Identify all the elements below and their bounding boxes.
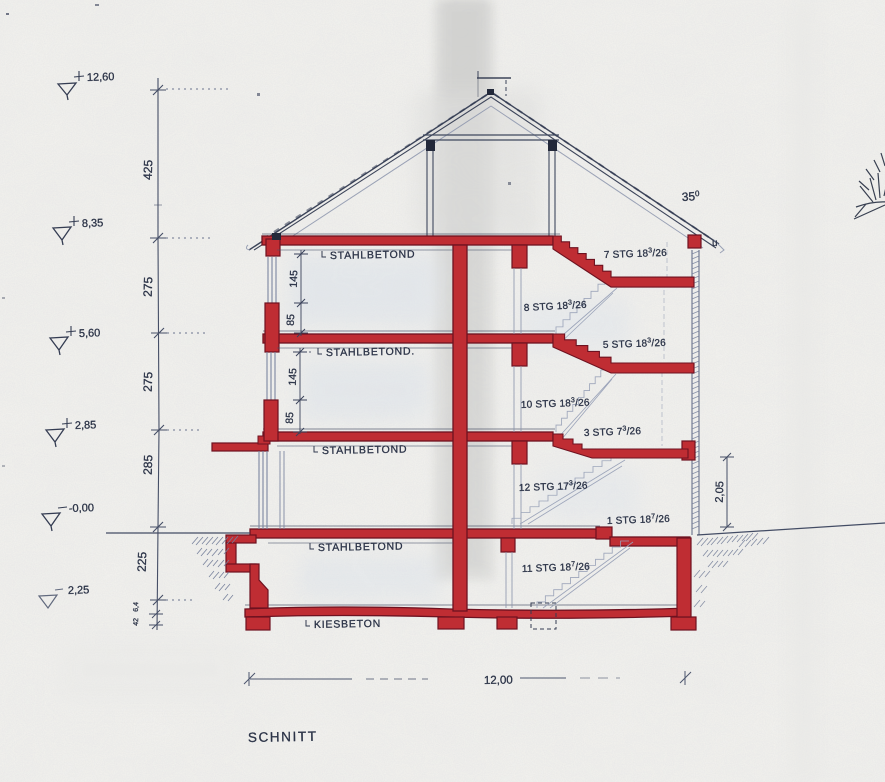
svg-text:12,60: 12,60: [87, 71, 115, 84]
svg-text:STAHLBETOND: STAHLBETOND: [322, 444, 408, 457]
svg-text:2,25: 2,25: [68, 584, 90, 597]
svg-text:145: 145: [288, 270, 301, 288]
svg-text:285: 285: [141, 454, 156, 475]
svg-text:275: 275: [141, 371, 156, 392]
svg-text:12 STG 173/26: 12 STG 173/26: [519, 480, 588, 494]
svg-text:-0,00: -0,00: [69, 502, 94, 515]
svg-text:10 STG 183/26: 10 STG 183/26: [521, 397, 590, 411]
svg-text:7 STG 183/26: 7 STG 183/26: [604, 247, 668, 261]
svg-text:85: 85: [285, 314, 297, 326]
svg-text:KIESBETON: KIESBETON: [314, 618, 381, 631]
svg-text:1 STG 187/26: 1 STG 187/26: [607, 513, 671, 527]
svg-text:425: 425: [141, 159, 156, 180]
svg-text:85: 85: [284, 412, 296, 424]
svg-text:11 STG 187/26: 11 STG 187/26: [522, 561, 591, 575]
svg-text:2,05: 2,05: [714, 481, 727, 503]
svg-text:2,85: 2,85: [75, 419, 97, 432]
svg-text:42: 42: [133, 618, 140, 626]
svg-text:STAHLBETOND.: STAHLBETOND.: [326, 345, 415, 359]
svg-text:225: 225: [135, 551, 150, 572]
svg-text:STAHLBETOND: STAHLBETOND: [318, 541, 404, 554]
svg-text:8,35: 8,35: [82, 217, 104, 230]
svg-text:145: 145: [287, 368, 300, 386]
svg-text:12,00: 12,00: [484, 674, 513, 687]
svg-text:5 STG 183/26: 5 STG 183/26: [603, 337, 667, 351]
svg-text:5,60: 5,60: [79, 327, 101, 340]
svg-text:STAHLBETOND: STAHLBETOND: [330, 249, 416, 262]
svg-text:u: u: [712, 238, 718, 249]
svg-text:3 STG 73/26: 3 STG 73/26: [584, 425, 642, 439]
svg-text:6,4: 6,4: [133, 602, 140, 612]
svg-text:SCHNITT: SCHNITT: [248, 729, 318, 745]
svg-text:275: 275: [141, 276, 156, 297]
